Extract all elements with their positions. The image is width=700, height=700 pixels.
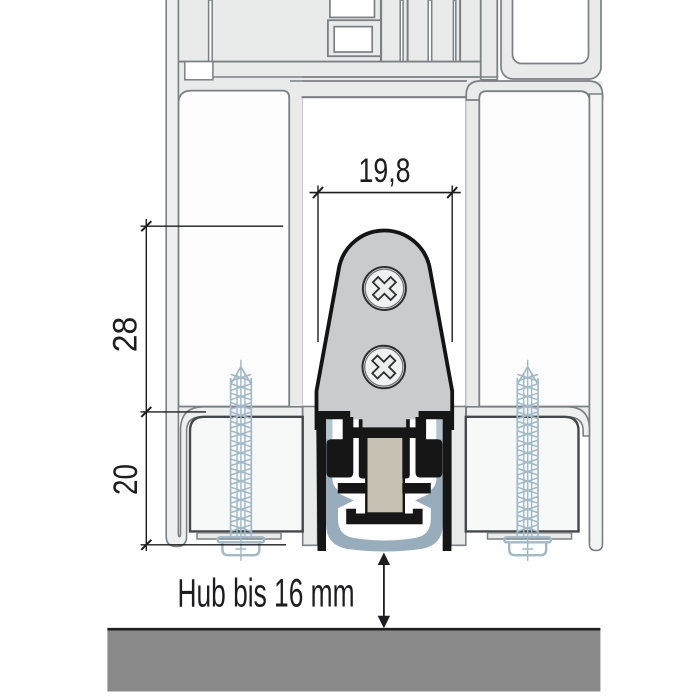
svg-text:20: 20 <box>107 464 145 495</box>
svg-text:28: 28 <box>107 317 145 353</box>
svg-text:19,8: 19,8 <box>359 152 411 190</box>
svg-text:Hub bis 16 mm: Hub bis 16 mm <box>178 572 355 616</box>
